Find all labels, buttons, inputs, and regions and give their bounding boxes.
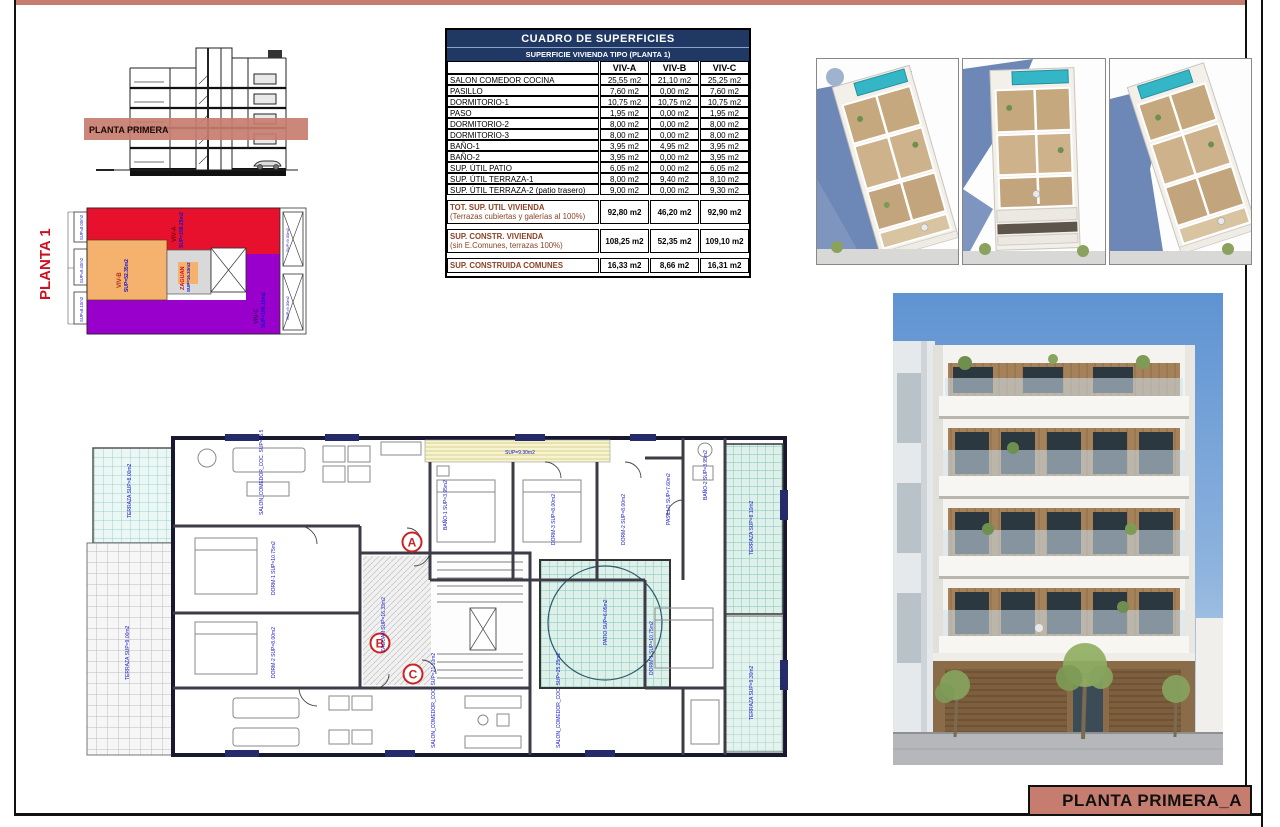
axon-render-1 [816,58,959,265]
row-value-c: 6,05 m2 [700,162,749,173]
row-value-a: 3,95 m2 [600,151,649,162]
terrace-top-left [93,448,173,543]
row-label: PASO [447,107,599,118]
row-value-c: 8,10 m2 [700,173,749,184]
row-value-c: 10,75 m2 [700,96,749,107]
row-value-b: 0,00 m2 [650,129,699,140]
zone-zaguan-sup: SUP=16.33m2 [186,262,191,292]
row-value-b: 0,00 m2 [650,107,699,118]
row-value-b: 0,00 m2 [650,184,699,195]
summary-value-b: 46,20 m2 [650,200,699,224]
neighbor-right [1196,618,1223,737]
row-label: SUP. ÚTIL TERRAZA-2 (patio trasero) [447,184,599,195]
col-header-viv-a: VIV-A [600,61,649,74]
table-row: BAÑO-2 3,95 m2 0,00 m2 3,95 m2 [447,151,749,162]
row-label: BAÑO-1 [447,140,599,151]
table-column-headers: VIV-A VIV-B VIV-C [447,61,749,74]
svg-text:DORM-1 SUP=10.75m2: DORM-1 SUP=10.75m2 [271,541,277,595]
summary-label: SUP. CONSTRUIDA COMUNES [450,261,563,270]
svg-text:DORM-2 SUP=8.00m2: DORM-2 SUP=8.00m2 [271,627,277,678]
row-value-c: 1,95 m2 [700,107,749,118]
row-label: BAÑO-2 [447,151,599,162]
summary-row-total-util: TOT. SUP. UTIL VIVIENDA (Terrazas cubier… [447,200,749,224]
sheet-title-box: PLANTA PRIMERA_A [1028,785,1252,816]
marker-c: C [409,668,418,682]
planta-primera-band: PLANTA PRIMERA [84,118,308,140]
svg-text:SALON_COMEDOR_COC. SUP=25.25m2: SALON_COMEDOR_COC. SUP=25.25m2 [556,653,562,748]
svg-text:TERRAZA SUP=9.00m2: TERRAZA SUP=9.00m2 [125,625,131,680]
row-value-b: 0,00 m2 [650,162,699,173]
zone-viv-c-name: VIV-C [254,308,260,324]
marker-a: A [408,536,417,550]
row-label: SUP. ÚTIL PATIO [447,162,599,173]
svg-text:TERRAZA SUP=8.10m2: TERRAZA SUP=8.10m2 [749,500,755,555]
zone-viv-a-sup: SUP=108.25m2 [179,212,185,248]
svg-text:PASILLO SUP=7.60m2: PASILLO SUP=7.60m2 [666,473,672,525]
summary-value-a: 16,33 m2 [600,258,649,273]
row-value-a: 9,00 m2 [600,184,649,195]
keyplan-right-label: SUP=9.00m2 [285,227,290,252]
svg-text:DORM-2 SUP=8.00m2: DORM-2 SUP=8.00m2 [621,494,627,545]
table-row: DORMITORIO-3 8,00 m2 0,00 m2 8,00 m2 [447,129,749,140]
frame-right-outer [1261,0,1263,827]
keyplan-right-label: SUP=9.30m2 [285,295,290,320]
keyplan-side-label: SUP=8.00m2 [79,214,84,240]
axon-render-2 [962,58,1105,265]
svg-text:SALON_COMEDOR_COC. SUP=21.10m2: SALON_COMEDOR_COC. SUP=21.10m2 [431,653,437,748]
row-value-c: 8,00 m2 [700,118,749,129]
zone-viv-c-sup: SUP=109.10m2 [261,292,267,328]
row-value-c: 3,95 m2 [700,140,749,151]
svg-text:SALON_COMEDOR_COC. SUP=25.55m2: SALON_COMEDOR_COC. SUP=25.55m2 [259,430,265,515]
row-label: SALON COMEDOR COCINA [447,74,599,85]
frame-left [14,0,16,816]
svg-text:ZAGUAN SUP=16.33m2: ZAGUAN SUP=16.33m2 [381,597,387,652]
summary-value-c: 16,31 m2 [700,258,749,273]
keyplan-side-label: SUP=8.10m2 [79,296,84,322]
summary-value-b: 8,66 m2 [650,258,699,273]
summary-row-comunes: SUP. CONSTRUIDA COMUNES 16,33 m2 8,66 m2… [447,258,749,273]
row-value-b: 0,00 m2 [650,85,699,96]
neighbor-left [893,341,935,737]
table-row: PASO 1,95 m2 0,00 m2 1,95 m2 [447,107,749,118]
section-band-label: PLANTA PRIMERA [89,125,169,135]
summary-row-constr: SUP. CONSTR. VIVIENDA (sin E.Comunes, te… [447,229,749,253]
svg-text:TERRAZA SUP=9.30m2: TERRAZA SUP=9.30m2 [749,665,755,720]
col-header-empty [447,61,599,74]
row-value-b: 4,95 m2 [650,140,699,151]
row-value-a: 6,05 m2 [600,162,649,173]
surfaces-table: CUADRO DE SUPERFICIES SUPERFICIE VIVIEND… [445,28,751,278]
row-value-b: 0,00 m2 [650,151,699,162]
svg-text:DORM-1 SUP=10.75m2: DORM-1 SUP=10.75m2 [649,621,655,675]
axon-render-3 [1109,58,1252,265]
row-label: PASILLO [447,85,599,96]
plan-sheet: PLANTA PRIMERA PLANTA 1 SUP=8.00m2 SUP=9… [0,0,1280,827]
row-value-a: 8,00 m2 [600,118,649,129]
table-subtitle: SUPERFICIE VIVIENDA TIPO (PLANTA 1) [447,48,749,61]
row-value-a: 1,95 m2 [600,107,649,118]
row-value-c: 7,60 m2 [700,85,749,96]
row-value-a: 8,00 m2 [600,173,649,184]
zone-viv-b-name: VIV-B [117,272,123,288]
row-label: DORMITORIO-3 [447,129,599,140]
row-value-a: 10,75 m2 [600,96,649,107]
summary-value-a: 108,25 m2 [600,229,649,253]
summary-sublabel: (Terrazas cubiertas y galerías al 100%) [450,212,596,221]
row-value-c: 3,95 m2 [700,151,749,162]
summary-value-b: 52,35 m2 [650,229,699,253]
building-section-drawing: PLANTA PRIMERA [78,20,313,190]
table-row: DORMITORIO-1 10,75 m2 10,75 m2 10,75 m2 [447,96,749,107]
row-value-c: 25,25 m2 [700,74,749,85]
row-label: SUP. ÚTIL TERRAZA-1 [447,173,599,184]
row-value-b: 0,00 m2 [650,118,699,129]
row-value-b: 21,10 m2 [650,74,699,85]
table-row: SALON COMEDOR COCINA 25,55 m2 21,10 m2 2… [447,74,749,85]
col-header-viv-b: VIV-B [650,61,699,74]
svg-text:DORM-3 SUP=8.00m2: DORM-3 SUP=8.00m2 [551,494,557,545]
street [893,733,1223,765]
summary-value-c: 92,90 m2 [700,200,749,224]
svg-text:SUP=9.30m2: SUP=9.30m2 [505,450,535,456]
svg-text:PATIO SUP=6.05m2: PATIO SUP=6.05m2 [603,599,609,645]
key-plan: PLANTA 1 SUP=8.00m2 SUP=9.40m2 SUP=8.10m… [28,192,328,342]
row-value-c: 8,00 m2 [700,129,749,140]
svg-text:BAÑO-1 SUP=3.95m2: BAÑO-1 SUP=3.95m2 [442,480,449,530]
summary-sublabel: (sin E.Comunes, terrazas 100%) [450,241,596,250]
svg-text:TERRAZA SUP=8.00m2: TERRAZA SUP=8.00m2 [127,463,133,518]
row-label: DORMITORIO-1 [447,96,599,107]
table-row: PASILLO 7,60 m2 0,00 m2 7,60 m2 [447,85,749,96]
summary-value-a: 92,80 m2 [600,200,649,224]
table-row: SUP. ÚTIL TERRAZA-2 (patio trasero) 9,00… [447,184,749,195]
table-row: SUP. ÚTIL PATIO 6,05 m2 0,00 m2 6,05 m2 [447,162,749,173]
sheet-title: PLANTA PRIMERA_A [1062,791,1242,811]
table-title: CUADRO DE SUPERFICIES [447,30,749,48]
row-value-a: 8,00 m2 [600,129,649,140]
top-accent-bar [14,0,1246,5]
facade-render [893,293,1223,765]
row-value-a: 7,60 m2 [600,85,649,96]
summary-label: TOT. SUP. UTIL VIVIENDA [450,203,596,212]
key-plan-title: PLANTA 1 [37,228,54,300]
row-value-c: 9,30 m2 [700,184,749,195]
zone-viv-b-sup: SUP=52.35m2 [124,259,130,292]
row-value-b: 10,75 m2 [650,96,699,107]
table-row: SUP. ÚTIL TERRAZA-1 8,00 m2 9,40 m2 8,10… [447,173,749,184]
table-row: DORMITORIO-2 8,00 m2 0,00 m2 8,00 m2 [447,118,749,129]
table-row: BAÑO-1 3,95 m2 4,95 m2 3,95 m2 [447,140,749,151]
row-value-b: 9,40 m2 [650,173,699,184]
row-value-a: 3,95 m2 [600,140,649,151]
table-body: SALON COMEDOR COCINA 25,55 m2 21,10 m2 2… [447,74,749,195]
floor-plan: A B C TERRAZA SUP=8.00m2 TERRAZA SUP=9.0… [85,430,825,770]
keyplan-side-label: SUP=9.40m2 [79,257,84,283]
row-value-a: 25,55 m2 [600,74,649,85]
axonometric-renders [816,58,1252,263]
svg-text:BAÑO-2 SUP=3.95m2: BAÑO-2 SUP=3.95m2 [702,450,709,500]
row-label: DORMITORIO-2 [447,118,599,129]
col-header-viv-c: VIV-C [700,61,749,74]
summary-value-c: 109,10 m2 [700,229,749,253]
zone-viv-a-name: VIV-A [172,226,178,242]
summary-label: SUP. CONSTR. VIVIENDA [450,232,596,241]
